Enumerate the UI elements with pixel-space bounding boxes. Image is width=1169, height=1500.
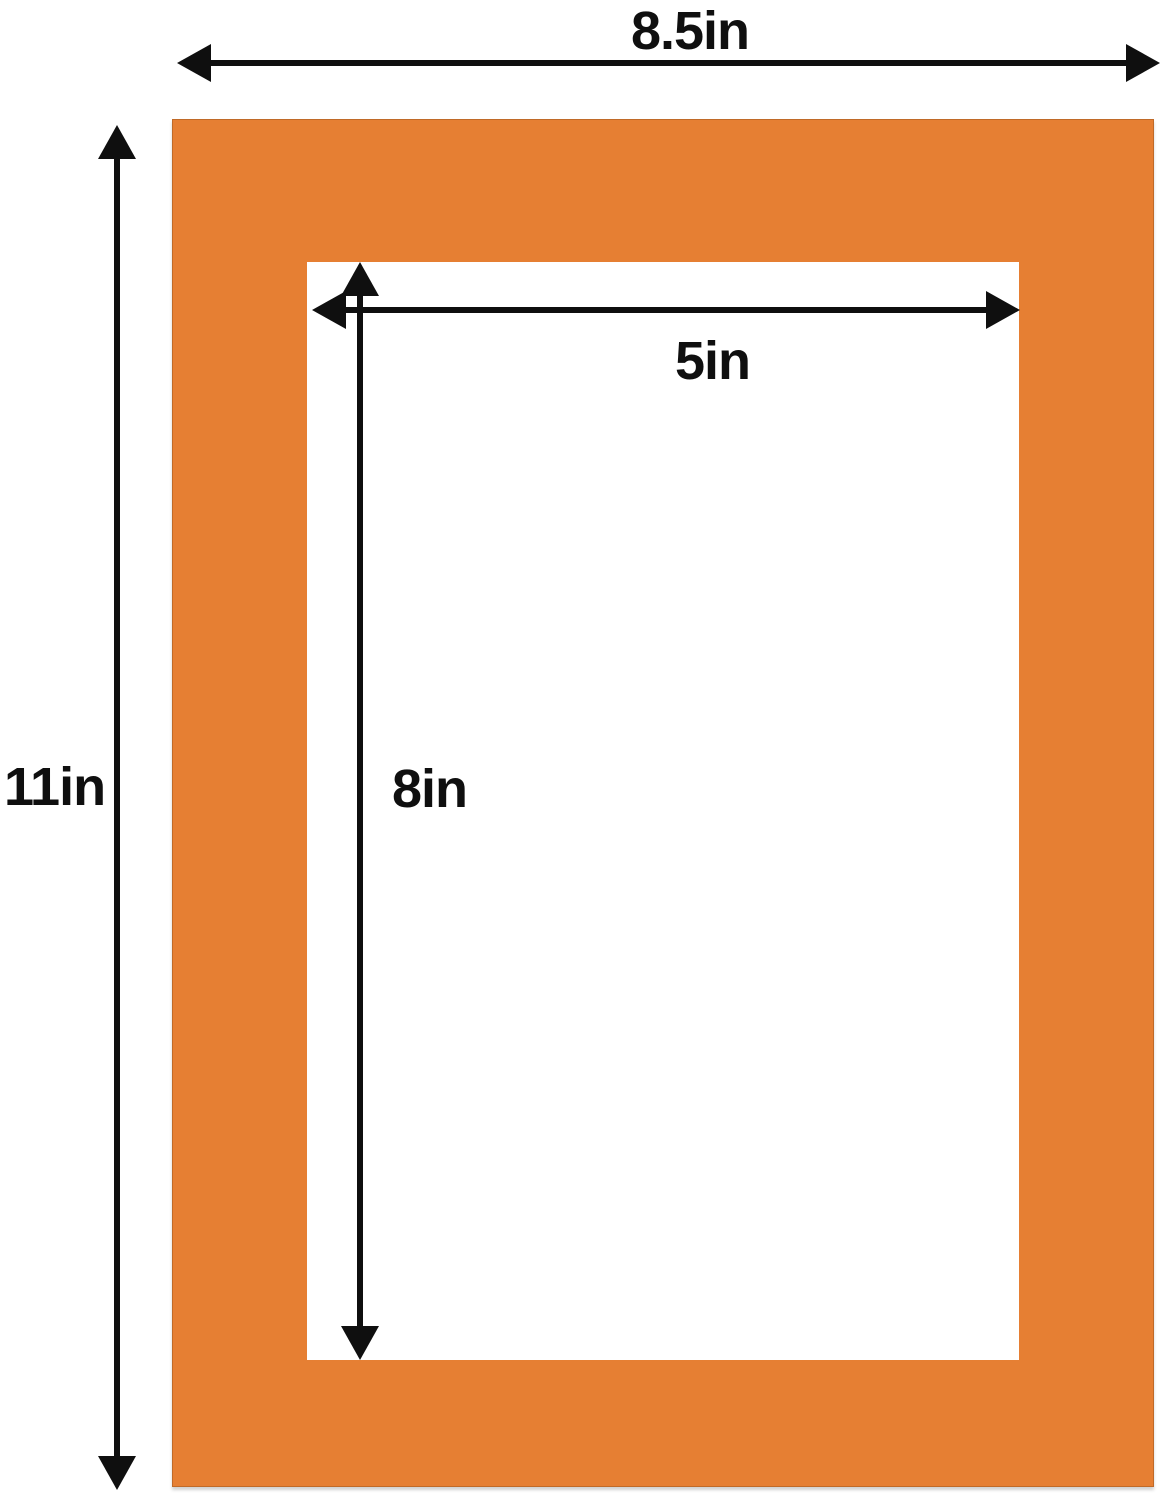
arrow-shaft [114,151,120,1464]
arrow-shaft [338,307,994,313]
outer-height-label: 11in [4,760,105,814]
opening-height-arrow [340,262,380,1360]
mat-dimension-diagram: 8.5in 11in 5in 8in [0,0,1169,1500]
outer-width-arrow [177,43,1160,83]
opening-height-label: 8in [392,762,467,816]
opening-width-arrow [312,290,1020,330]
opening-width-label: 5in [630,334,795,388]
arrow-shaft [357,288,363,1334]
arrowhead-down-icon [341,1326,379,1360]
arrowhead-right-icon [1126,44,1160,82]
arrowhead-down-icon [98,1456,136,1490]
arrowhead-right-icon [986,291,1020,329]
arrow-shaft [203,60,1134,66]
outer-height-arrow [97,125,137,1490]
